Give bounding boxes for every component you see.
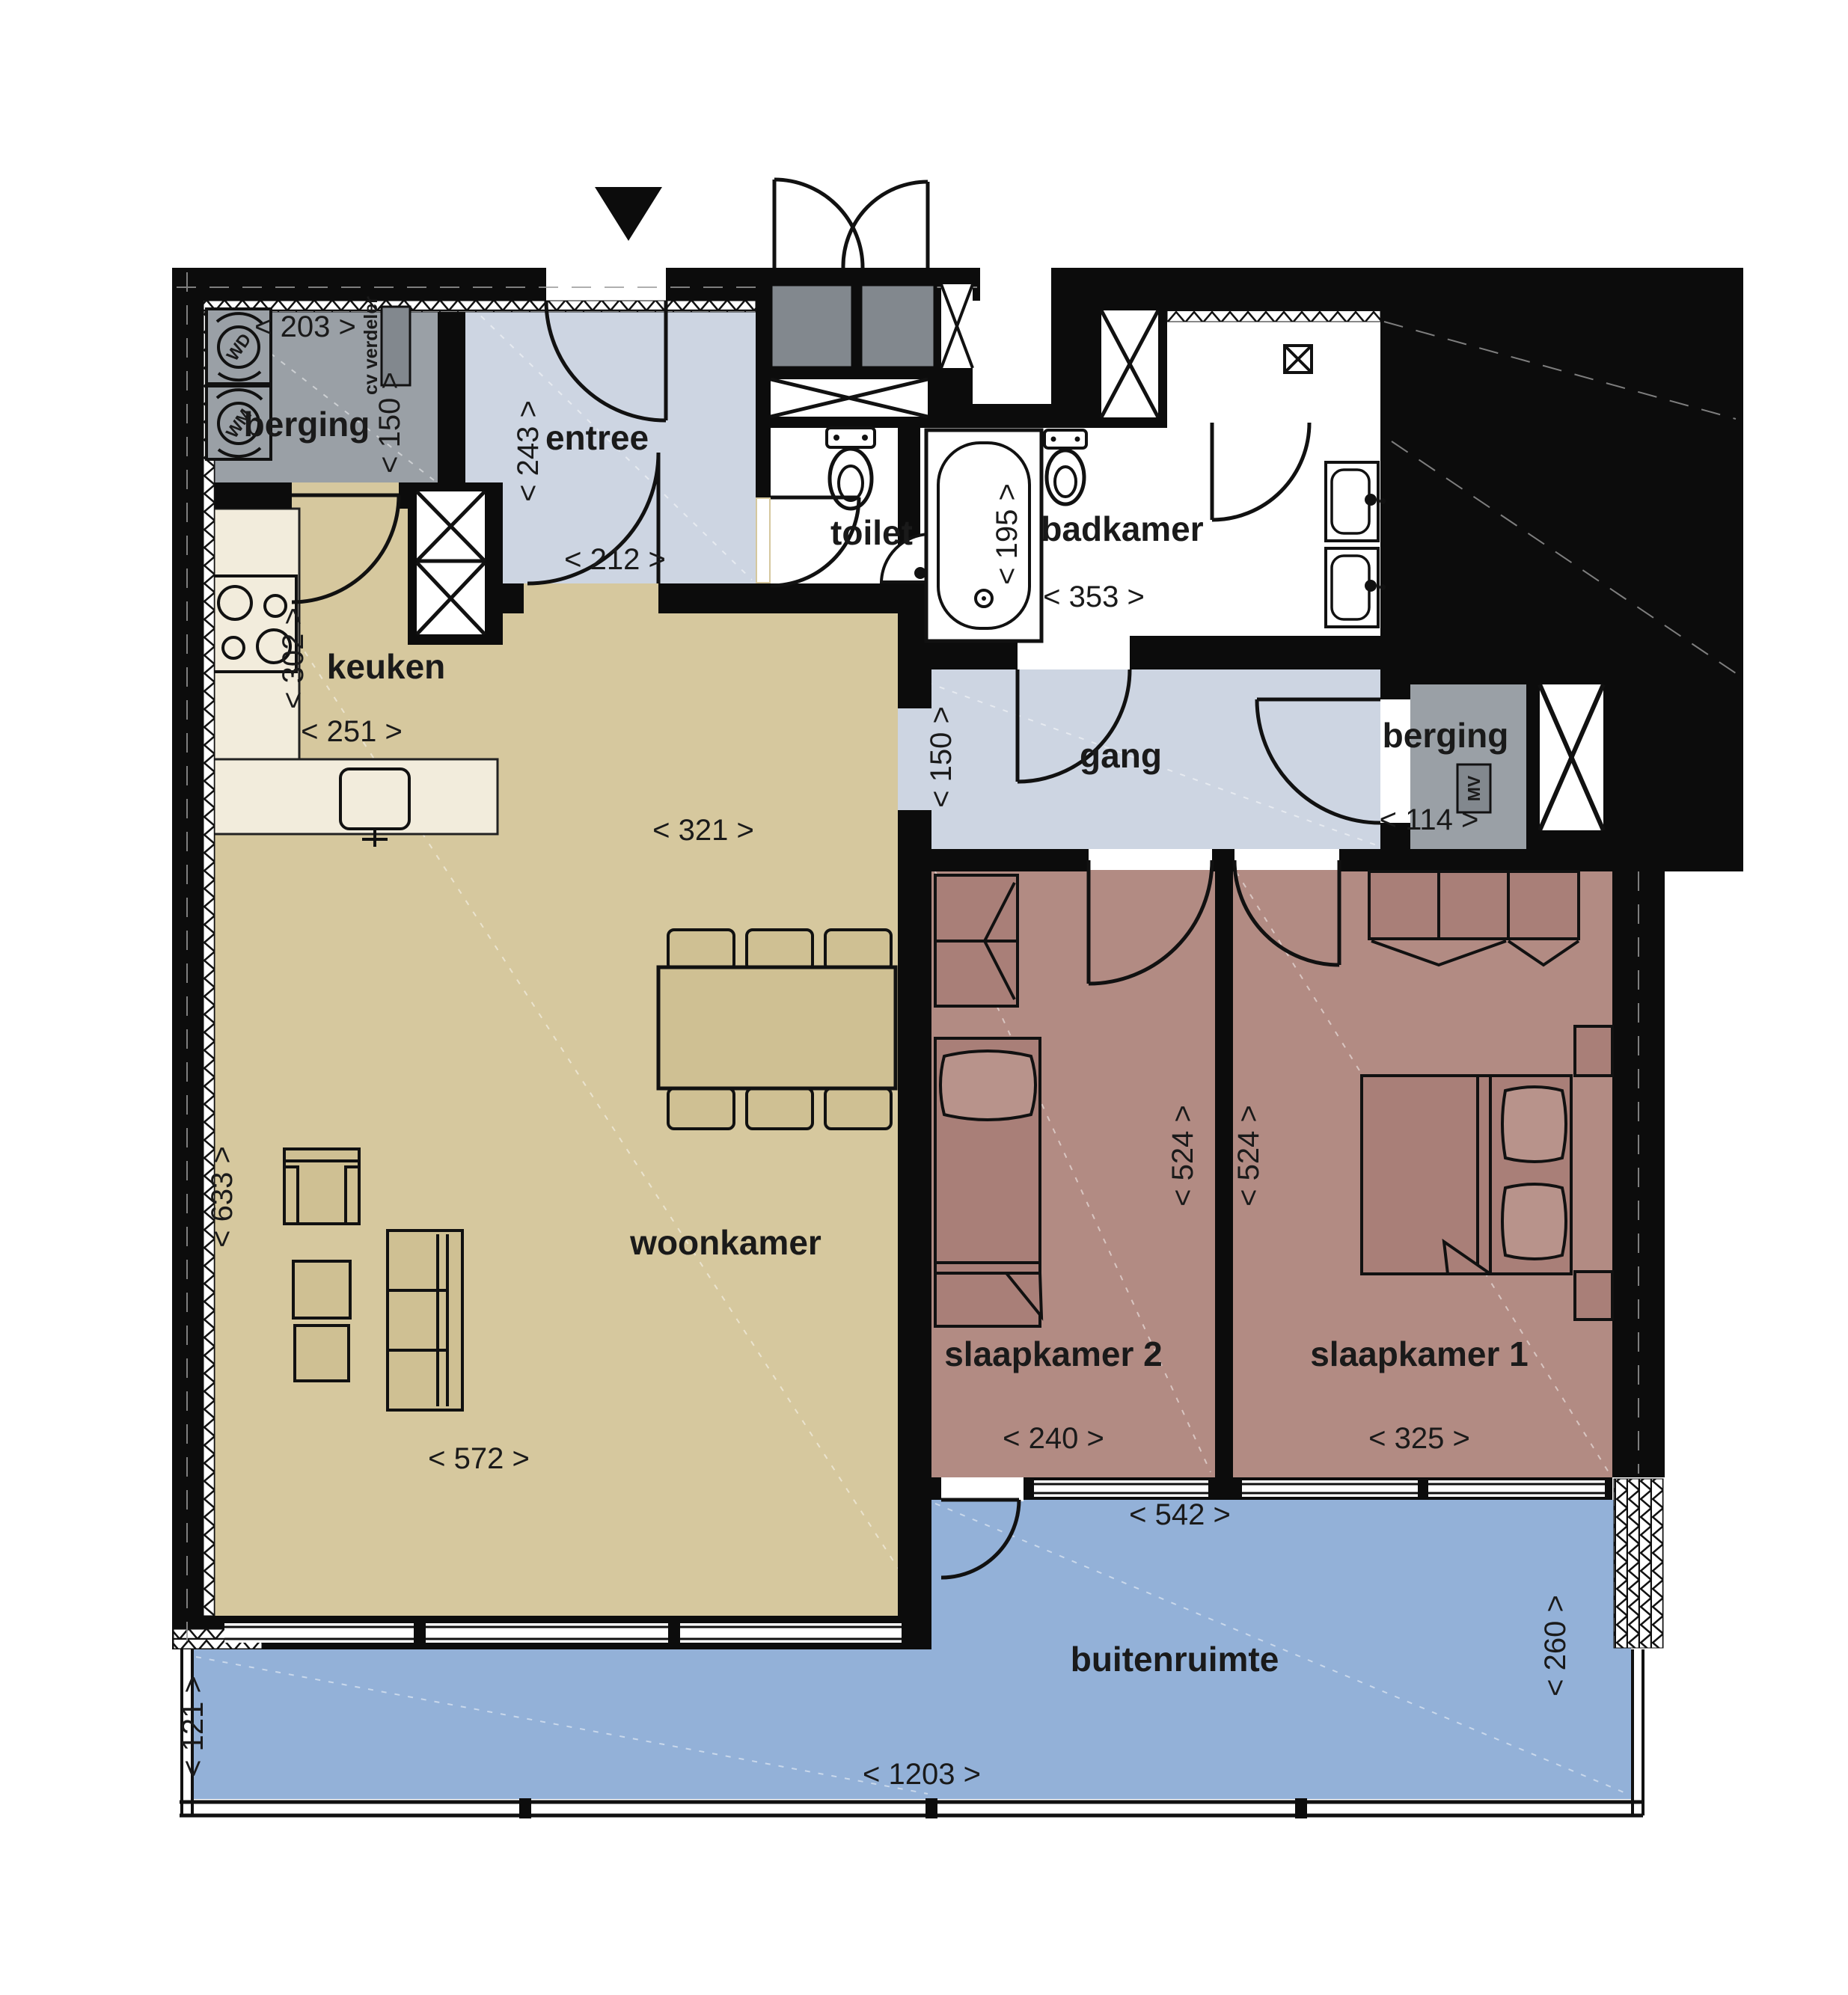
sink-icon [1326, 462, 1386, 541]
dim-woonkamer-depth: < 633 > [206, 1146, 239, 1248]
nightstand-icon-2 [1575, 1272, 1612, 1320]
dim-woonkamer-width: < 572 > [428, 1442, 530, 1475]
shower-floor [1167, 310, 1380, 419]
floor-plan-drawing: berging< 203 >< 150 >cv verdelerWDWMentr… [0, 0, 1848, 1995]
wardrobe-icon-sk2 [935, 875, 1018, 1006]
dim-badkamer-width: < 353 > [1043, 580, 1145, 613]
nightstand-icon [1575, 1026, 1612, 1076]
side-table-icon-2 [295, 1326, 349, 1381]
dim-slaapkamer2-depth: < 524 > [1166, 1105, 1199, 1207]
room-label-toilet: toilet [830, 513, 913, 552]
sink-icon-2 [1326, 548, 1386, 627]
dim-entree-width: < 212 > [564, 543, 666, 576]
dim-woonkamer-top: < 321 > [652, 814, 754, 847]
room-label-badkamer: badkamer [1041, 509, 1203, 548]
dim-entree-depth: < 243 > [512, 400, 545, 502]
room-label-buitenruimte: buitenruimte [1071, 1640, 1279, 1679]
entrance-arrow-icon [595, 187, 662, 241]
shaft-x-toilet-top [771, 379, 928, 417]
meter-cupboard-right [860, 284, 935, 368]
sofa-icon [388, 1231, 462, 1410]
side-table-icon [293, 1261, 350, 1318]
room-label-woonkamer: woonkamer [629, 1223, 821, 1262]
dim-keuken-depth: < 302 > [277, 607, 310, 709]
sk1-door-threshold [1234, 851, 1339, 870]
room-label-keuken: keuken [327, 647, 446, 686]
dim-buitenruimte-width: < 1203 > [863, 1758, 981, 1791]
sk2-door-threshold [1089, 851, 1212, 870]
dim-berging-right-width: < 114 > [1380, 803, 1479, 836]
dim-badkamer-depth: < 195 > [991, 483, 1024, 585]
room-label-slaapkamer-2: slaapkamer 2 [944, 1334, 1163, 1373]
dim-buitenruimte-top: < 542 > [1129, 1498, 1231, 1531]
dim-slaapkamer1-width: < 325 > [1368, 1422, 1470, 1455]
dim-gang-depth: < 150 > [925, 706, 958, 808]
meter-cupboard-left [771, 284, 853, 368]
shaft-x-berging-right [1540, 684, 1603, 830]
dim-balcony-strip-depth: < 121 > [177, 1676, 209, 1777]
floor-plan-page: berging< 203 >< 150 >cv verdelerWDWMentr… [0, 0, 1848, 1995]
dim-berging-width: < 203 > [254, 310, 356, 343]
shaft-x-badkamer [1101, 310, 1158, 417]
dim-keuken-width: < 251 > [301, 715, 403, 748]
toilet-door-threshold [757, 499, 769, 582]
woonkamer-window [224, 1620, 902, 1646]
slaapkamer1-window [1242, 1477, 1605, 1500]
bathtub-icon [926, 430, 1041, 641]
balcony-door-threshold [941, 1477, 1024, 1501]
room-label-gang: gang [1080, 736, 1162, 775]
bed-icon-sk2 [935, 1038, 1041, 1326]
toilet-badkamer-icon [1044, 430, 1086, 504]
shaft-x-keuken [417, 491, 485, 634]
label-cv-verdeler: cv verdeler [361, 296, 382, 395]
room-label-entree: entree [545, 418, 649, 457]
shaft-x-meterkast [941, 284, 973, 368]
room-label-slaapkamer-1: slaapkamer 1 [1310, 1334, 1529, 1373]
dim-slaapkamer1-depth: < 524 > [1232, 1105, 1265, 1207]
dim-buitenruimte-depth: < 260 > [1539, 1595, 1572, 1697]
meter-cupboard-doors [774, 180, 928, 268]
dining-table-icon [658, 930, 896, 1129]
label-mv-unit: MV [1464, 775, 1484, 801]
slaapkamer2-window [1034, 1480, 1208, 1497]
armchair-icon [284, 1149, 359, 1224]
room-label-berging-right: berging [1383, 716, 1509, 755]
room-label-berging-left: berging [244, 405, 370, 444]
dim-slaapkamer2-width: < 240 > [1003, 1422, 1104, 1455]
